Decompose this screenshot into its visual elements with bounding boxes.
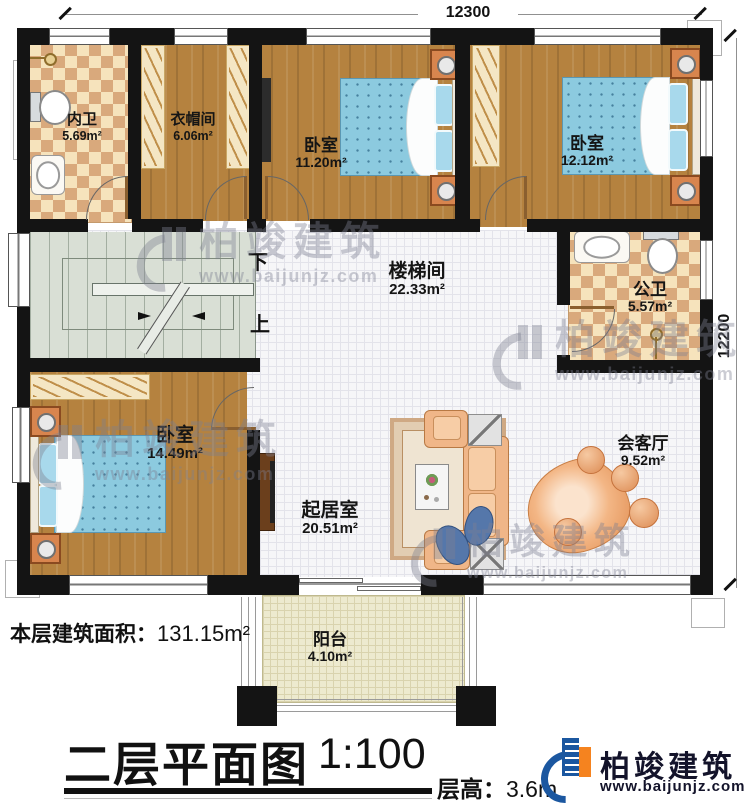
room-label-stair-hall: 楼梯间 22.33m² [357,261,477,299]
coffee-table-symbol [415,464,449,510]
nightstand-symbol [30,533,61,564]
window [12,407,30,483]
column [237,686,277,726]
pillow [668,129,688,171]
stair-direction-arrow [138,312,151,320]
wardrobe-symbol [30,374,150,400]
column [456,686,496,726]
wall [17,358,260,372]
wall [208,575,299,595]
sink-symbol [31,155,65,195]
logo-building-blue [562,738,579,776]
pillow [434,130,454,172]
headboard [30,435,39,533]
wall [17,307,30,407]
stair-down-label: 下 [248,246,268,275]
scale-label: 1:100 [318,730,426,779]
room-label-balcony: 阳台 4.10m² [270,630,390,665]
title-underline [64,788,432,794]
balcony-railing [262,699,462,715]
wall [17,45,30,233]
top-dimension-label: 12300 [418,4,518,22]
title-underline-thin [64,798,432,799]
drain-pipe-line [30,57,45,59]
wall [421,575,483,595]
table-decor [424,495,429,500]
window [69,575,208,595]
dimension-tick [723,29,736,42]
logo-building-orange [579,747,591,777]
wall [455,45,470,219]
brand-website: www.baijunjz.com [600,778,745,795]
window [483,575,691,595]
window [700,80,713,157]
stair-direction-arrow [192,312,205,320]
window [534,28,661,45]
right-dimension-label: 12200 [716,306,734,366]
wall [661,28,713,45]
room-label-cloakroom: 衣帽间 6.06m² [143,112,243,143]
room-label-bedroom-mid: 卧室 11.20m² [261,136,381,171]
pillow [668,83,688,125]
floor-plan-page: 12300 12200 下 上 [0,0,750,806]
floor-height-text: 层高：3.6m [437,770,557,804]
pouf-symbol [554,518,582,546]
wall [431,28,534,45]
right-dimension-line [736,38,737,588]
window [49,28,110,45]
wall [110,28,174,45]
brand-logo-icon [542,738,596,796]
wall [17,219,88,232]
window [174,28,228,45]
drain-pipe-line [655,337,657,359]
wall [700,45,713,80]
end-table-symbol [468,414,502,446]
bed-sheet [56,435,84,533]
wall [17,575,69,595]
wall [247,219,266,232]
pillow [38,443,58,485]
window [306,28,431,45]
room-label-public-bath: 公卫 5.57m² [590,280,710,315]
room-label-bedroom-bottom: 卧室 14.49m² [115,425,235,463]
sliding-door-panel [357,586,421,591]
wall [557,360,713,373]
room-label-reception: 会客厅 9.52m² [583,434,703,469]
room-label-living-room: 起居室 20.51m² [270,500,390,538]
wall [691,575,713,595]
toilet-symbol [647,238,678,274]
top-dimension-line [65,14,702,15]
closet-symbol [141,45,165,169]
window [8,233,30,307]
table-decor [434,497,439,502]
floor-drain-icon [44,53,57,66]
sliding-door-track [299,583,421,585]
closet-symbol [226,45,250,169]
sofa-cushion [468,447,496,491]
sliding-door-panel [299,578,363,583]
pillow [434,84,454,126]
nightstand-symbol [30,406,61,437]
pouf-symbol [629,498,659,528]
wall [310,219,480,232]
wall [527,219,713,232]
dimension-bracket [691,598,725,628]
dimension-tick [723,578,736,591]
nightstand-symbol [670,175,701,206]
page-title: 二层平面图 [64,726,309,795]
wall [249,45,262,219]
armchair-symbol [424,410,468,448]
floor-drain-icon [650,328,663,341]
pillow [38,485,58,527]
closet-symbol [472,45,500,167]
table-flowers [425,473,439,487]
sink-symbol [574,231,630,263]
room-label-bedroom-right: 卧室 12.12m² [527,134,647,169]
wall [557,232,570,305]
wall [247,430,260,575]
wall [228,28,306,45]
sofa-cushion [433,416,461,440]
wall [17,28,49,45]
floor-area-text: 本层建筑面积：131.15m² [10,618,250,648]
wall [132,219,203,232]
nightstand-symbol [670,48,701,79]
stair-up-label: 上 [250,308,270,337]
room-label-inner-bath: 内卫 5.69m² [32,112,132,143]
